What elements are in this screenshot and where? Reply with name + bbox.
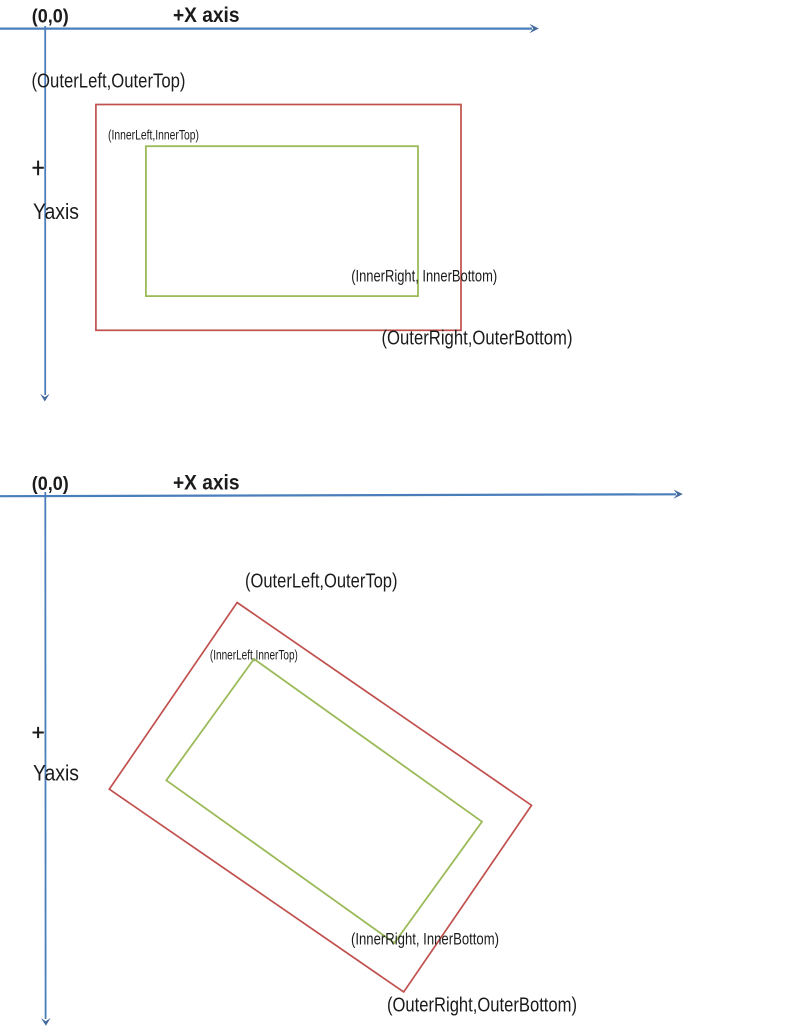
svg-text:+X axis: +X axis: [173, 472, 240, 495]
svg-text:(OuterLeft,OuterTop): (OuterLeft,OuterTop): [245, 571, 398, 593]
svg-text:(OuterRight,OuterBottom): (OuterRight,OuterBottom): [387, 995, 577, 1017]
svg-text:(InnerRight, InnerBottom): (InnerRight, InnerBottom): [351, 266, 497, 285]
svg-text:(InnerRight, InnerBottom): (InnerRight, InnerBottom): [351, 930, 499, 949]
svg-text:Yaxis: Yaxis: [33, 199, 79, 224]
svg-text:(0,0): (0,0): [32, 474, 69, 495]
svg-text:(0,0): (0,0): [32, 6, 69, 27]
svg-text:(InnerLeft,InnerTop): (InnerLeft,InnerTop): [108, 127, 199, 143]
svg-text:+X axis: +X axis: [173, 4, 240, 27]
svg-text:Yaxis: Yaxis: [33, 761, 79, 786]
svg-text:(OuterLeft,OuterTop): (OuterLeft,OuterTop): [32, 70, 186, 92]
svg-text:(OuterRight,OuterBottom): (OuterRight,OuterBottom): [382, 328, 573, 350]
